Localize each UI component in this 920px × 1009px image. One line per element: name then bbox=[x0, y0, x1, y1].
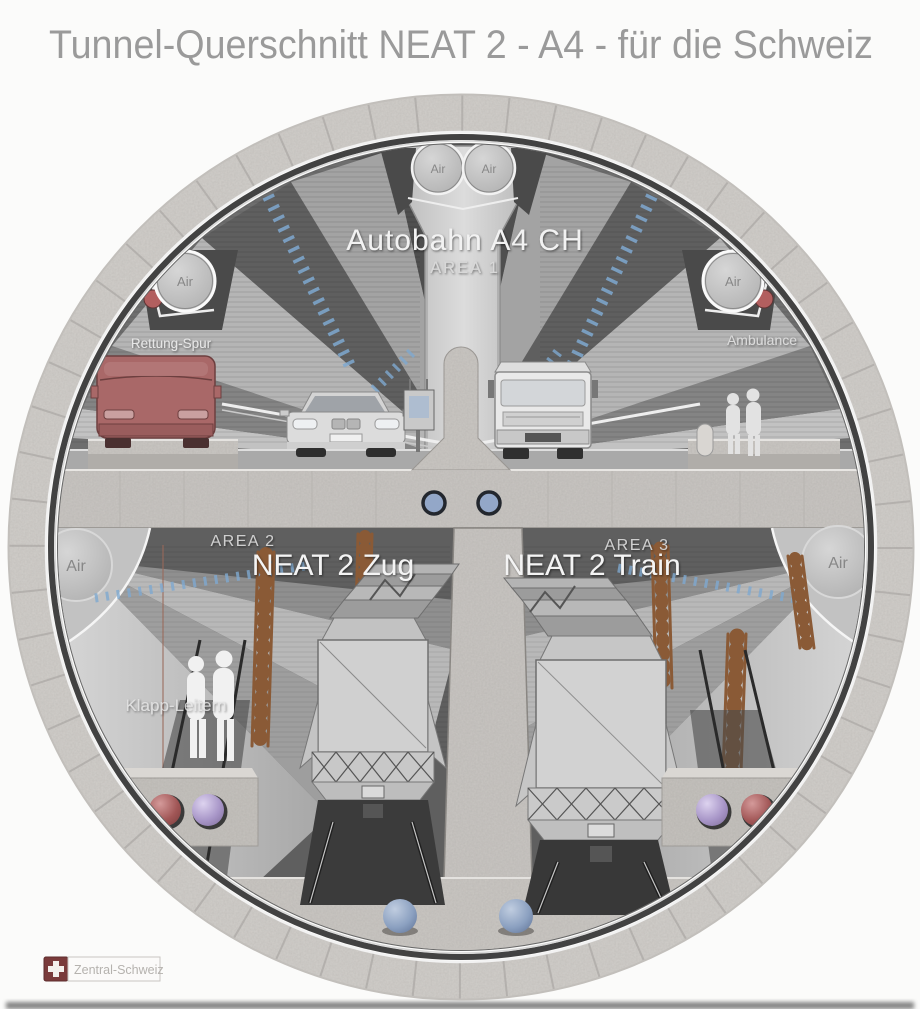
area2-label: AREA 2 bbox=[210, 533, 275, 550]
porthole-blue-left bbox=[423, 492, 445, 514]
air-duct-label: Air bbox=[725, 274, 742, 289]
truck bbox=[488, 362, 598, 459]
air-duct-top-left: Air bbox=[412, 142, 464, 194]
ambulance-label: Ambulance bbox=[727, 332, 797, 348]
bollard bbox=[697, 424, 713, 456]
divider-slab bbox=[20, 470, 900, 528]
sphere-blue-right bbox=[499, 899, 533, 933]
badge-label: Zentral-Schweiz bbox=[74, 963, 164, 977]
sphere-blue-left bbox=[383, 899, 417, 933]
air-duct-label: Air bbox=[828, 555, 848, 572]
brand-badge: Zentral-Schweiz bbox=[44, 957, 164, 981]
sphere-purple-right bbox=[696, 794, 728, 826]
air-duct-label: Air bbox=[177, 274, 194, 289]
air-duct-label: Air bbox=[482, 162, 497, 176]
rescue-lane-label: Rettung-Spur bbox=[131, 336, 212, 351]
neat-zug-label: NEAT 2 Zug bbox=[252, 549, 414, 582]
tunnel-cross-section-page: Tunnel-Querschnitt NEAT 2 - A4 - für die… bbox=[0, 0, 920, 1009]
bottom-shadow bbox=[6, 1002, 914, 1009]
page-title: Tunnel-Querschnitt NEAT 2 - A4 - für die… bbox=[49, 23, 873, 67]
tunnel-cross-section-diagram: Tunnel-Querschnitt NEAT 2 - A4 - für die… bbox=[0, 0, 920, 1009]
air-duct-top-right: Air bbox=[463, 142, 515, 194]
rescue-van bbox=[91, 356, 221, 448]
porthole-blue-right bbox=[478, 492, 500, 514]
area1-label: AREA 1 bbox=[430, 259, 500, 277]
air-duct-label: Air bbox=[431, 162, 446, 176]
air-duct-label: Air bbox=[66, 558, 86, 575]
neat-train-label: NEAT 2 Train bbox=[503, 549, 680, 582]
sphere-purple-left bbox=[192, 794, 224, 826]
klapp-leitern-label: Klapp-Leitern bbox=[125, 696, 226, 715]
autobahn-label: Autobahn A4 CH bbox=[346, 224, 584, 257]
